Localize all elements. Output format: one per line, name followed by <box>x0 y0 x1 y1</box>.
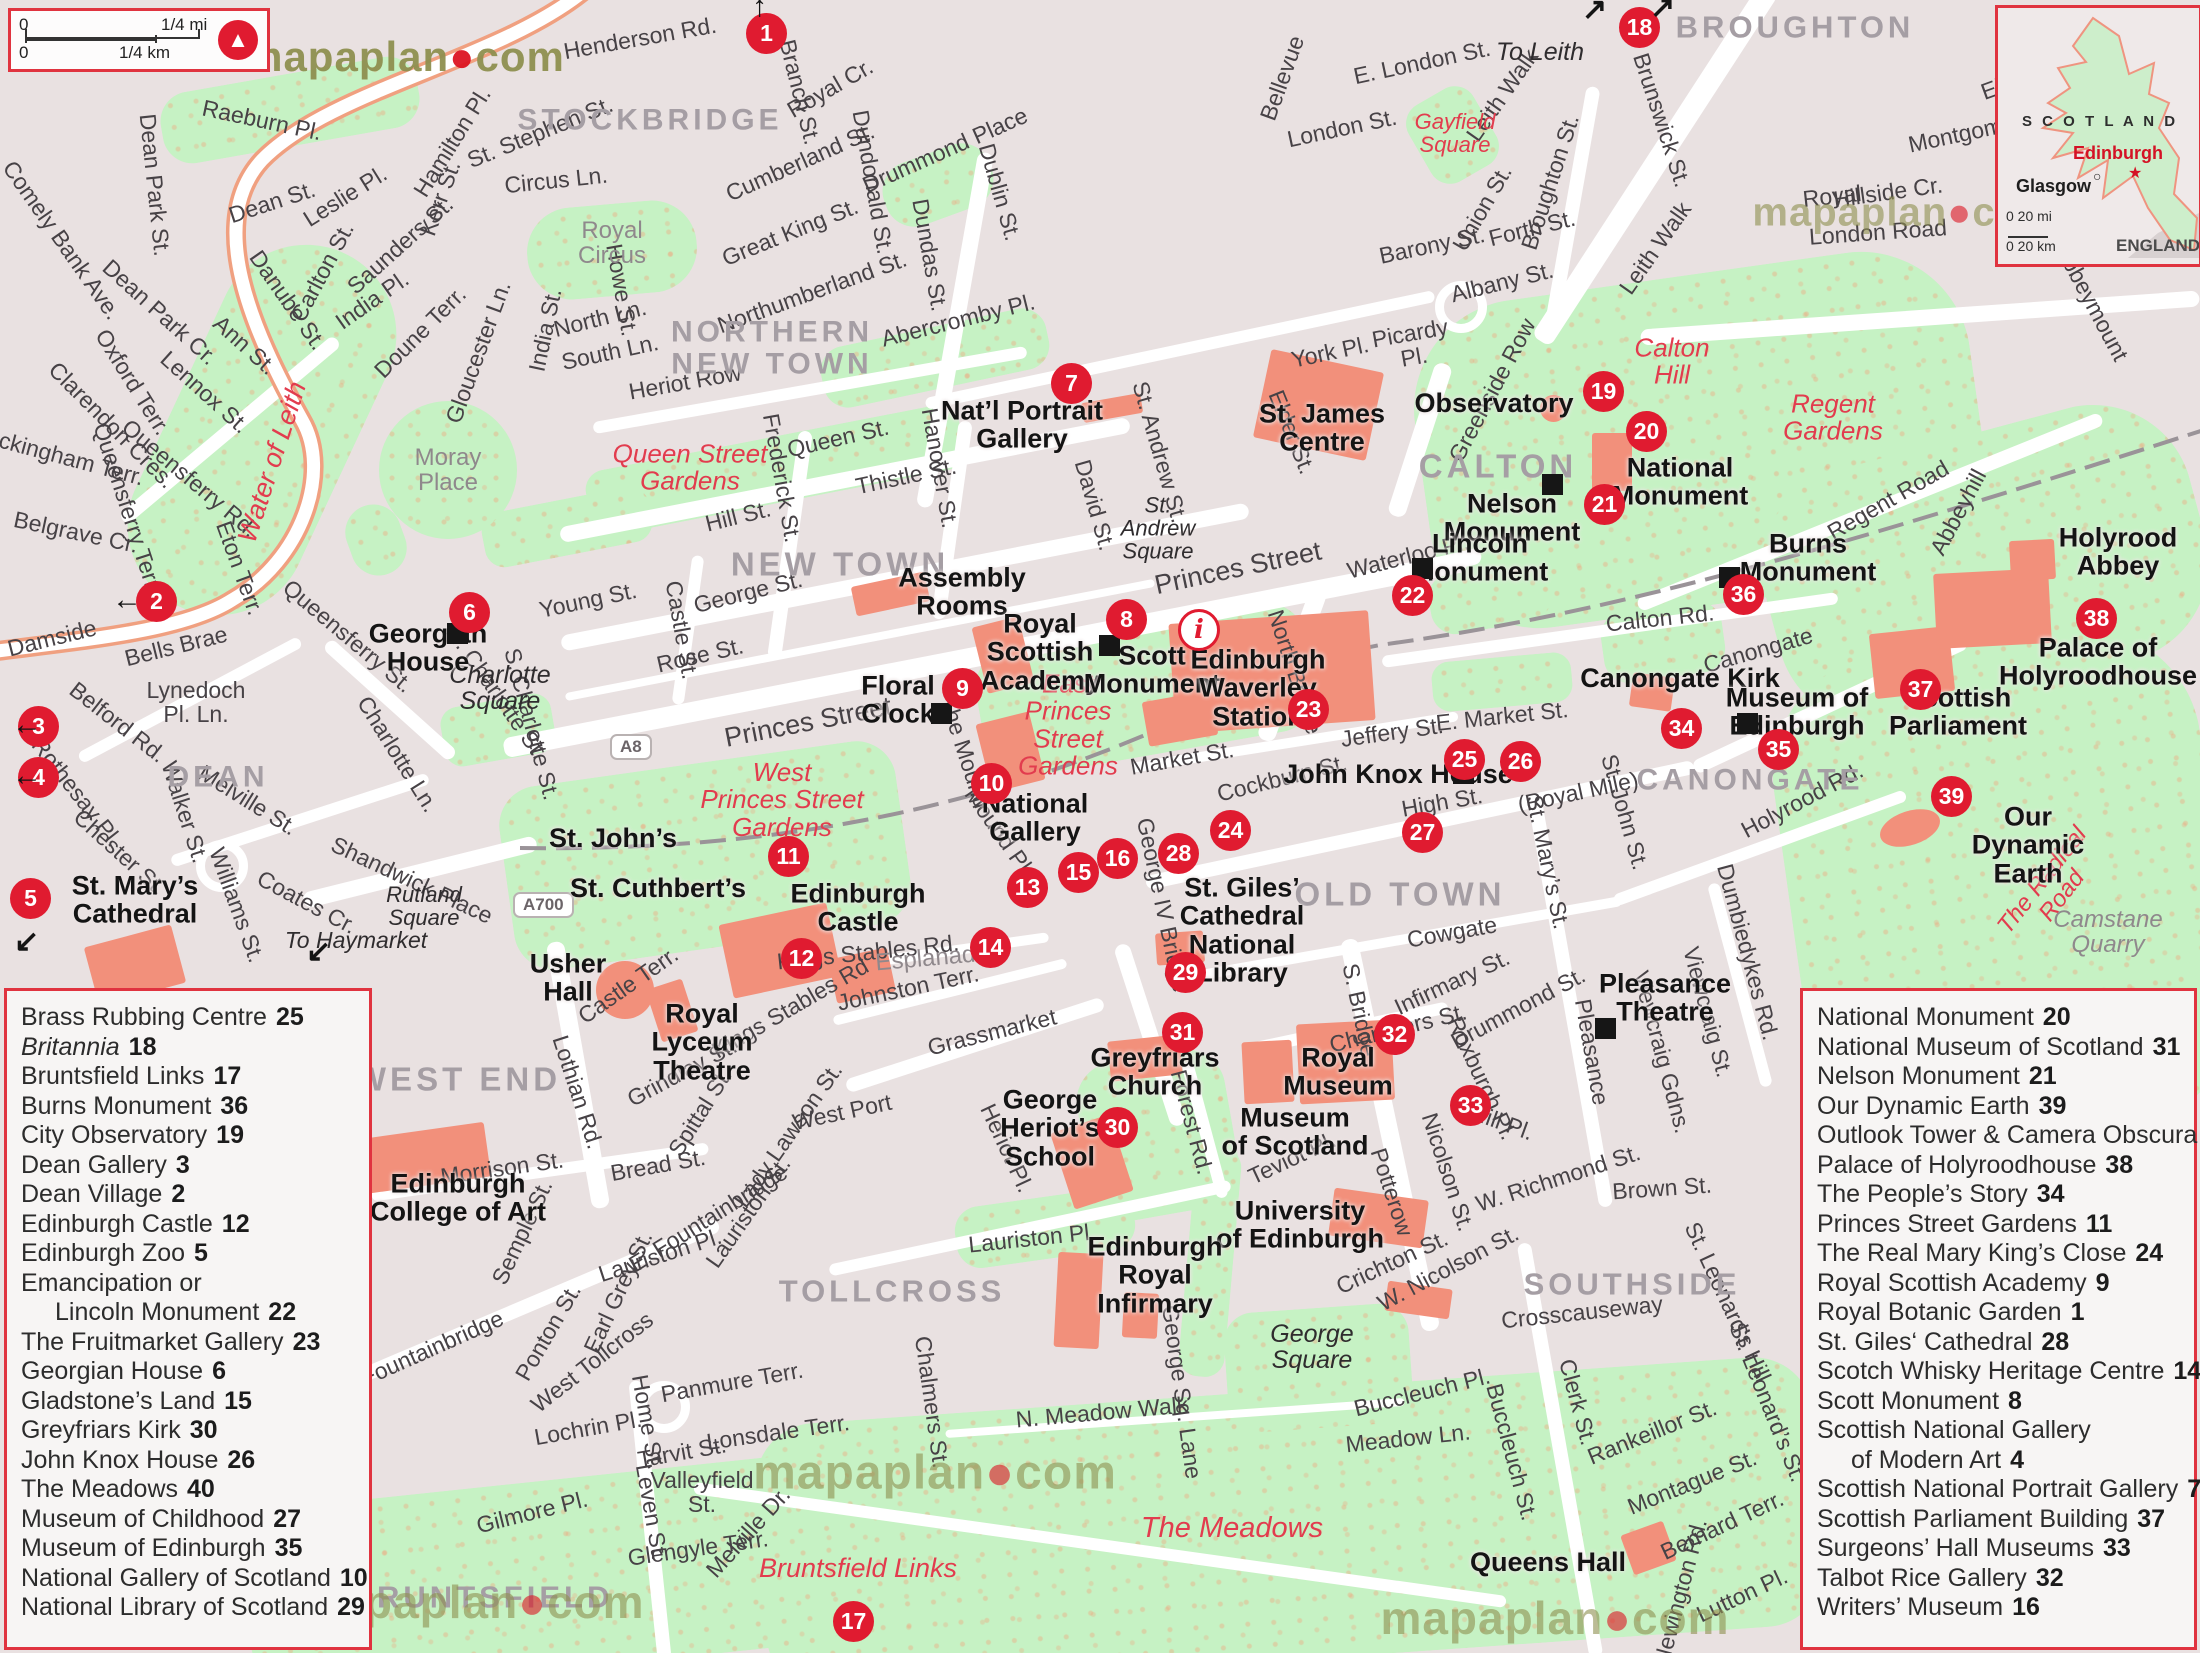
scale-tick <box>25 35 27 43</box>
north-arrow-glyph: ▲ <box>227 27 249 53</box>
inset-england-label: ENGLAND <box>2116 236 2200 256</box>
legend-item-continuation: Lincoln Monument22 <box>21 1298 369 1328</box>
inset-region-label: S C O T L A N D <box>2022 113 2178 130</box>
monument-square-icon <box>1542 474 1563 495</box>
legend-item-number: 24 <box>2135 1239 2163 1267</box>
road-number-badge: A8 <box>610 734 652 760</box>
legend-item-number: 19 <box>216 1121 244 1149</box>
legend-item: Royal Scottish Academy9 <box>1817 1269 2194 1299</box>
legend-item-name: Scottish National Portrait Gallery <box>1817 1475 2178 1503</box>
legend-item: National Museum of Scotland31 <box>1817 1033 2194 1063</box>
legend-item-name: Surgeons’ Hall Museums <box>1817 1534 2094 1562</box>
poi-marker: 6 <box>449 592 490 633</box>
place-label: Greyfriars Church <box>1090 1044 1219 1101</box>
scale-km-label: 1/4 km <box>119 43 170 63</box>
legend-item-name: Britannia <box>21 1033 120 1061</box>
legend-item-name: Scottish Parliament Building <box>1817 1505 2128 1533</box>
legend-item-name: Scott Monument <box>1817 1387 1999 1415</box>
legend-item: The Meadows40 <box>21 1475 369 1505</box>
legend-item-number: 6 <box>212 1357 226 1385</box>
legend-item-name: Museum of Edinburgh <box>21 1534 266 1562</box>
brand-dot-icon: ● <box>518 1576 547 1628</box>
street-label: Fountainbridge <box>357 1306 507 1390</box>
legend-item: Dean Gallery3 <box>21 1151 369 1181</box>
legend-item: Palace of Holyroodhouse38 <box>1817 1151 2194 1181</box>
poi-marker: 25 <box>1444 739 1485 780</box>
brand-watermark: mapaplan●com <box>753 1446 1117 1501</box>
legend-item: Brass Rubbing Centre25 <box>21 1003 369 1033</box>
poi-marker: 34 <box>1661 708 1702 749</box>
legend-item-name: Royal Botanic Garden <box>1817 1298 2062 1326</box>
legend-item-number: 37 <box>2137 1505 2165 1533</box>
street-label: Brown St. <box>1611 1172 1712 1203</box>
poi-marker: 17 <box>833 1601 874 1642</box>
poi-marker: 26 <box>1500 741 1541 782</box>
poi-marker: 36 <box>1723 574 1764 615</box>
poi-marker: 19 <box>1583 371 1624 412</box>
legend-item-name: Dean Village <box>21 1180 162 1208</box>
legend-item: Edinburgh Zoo5 <box>21 1239 369 1269</box>
legend-item-name: The Fruitmarket Gallery <box>21 1328 284 1356</box>
district-label: NORTHERN NEW TOWN <box>671 317 873 380</box>
district-label: CANONGATE <box>1636 764 1863 796</box>
district-label: BROUGHTON <box>1676 12 1915 45</box>
scale-km-rule <box>25 39 157 41</box>
brand-watermark: mapaplan●com <box>1380 1591 1729 1645</box>
scale-tick <box>198 29 200 37</box>
poi-marker: 30 <box>1097 1107 1138 1148</box>
legend-item-name: National Monument <box>1817 1003 2034 1031</box>
legend-item: Nelson Monument21 <box>1817 1062 2194 1092</box>
scotland-shape <box>1998 8 2199 264</box>
legend-item-name: Edinburgh Zoo <box>21 1239 185 1267</box>
street-label: Great King St. <box>719 194 862 271</box>
legend-item: Scotch Whisky Heritage Centre14 <box>1817 1357 2194 1387</box>
legend-item-number: 5 <box>194 1239 208 1267</box>
park-name-label: Gayfield Square <box>1415 110 1496 156</box>
district-label: SOUTHSIDE <box>1524 1269 1741 1302</box>
place-label: Museum of Scotland <box>1222 1104 1369 1161</box>
legend-item-number: 15 <box>224 1387 252 1415</box>
inset-scale-mi: 0 20 mi <box>2006 208 2052 224</box>
edinburgh-tourist-map: Henderson Rd.Branch St.Raeburn Pl.Dean P… <box>0 0 2200 1653</box>
legend-item-number: 27 <box>273 1505 301 1533</box>
legend-item-name: St. Giles‘ Cathedral <box>1817 1328 2032 1356</box>
street-label: Bellevue <box>1256 32 1309 123</box>
legend-left-panel: Brass Rubbing Centre25Britannia18Bruntsf… <box>4 988 372 1650</box>
direction-arrow-icon: ↗ <box>1582 0 1607 27</box>
legend-item: National Monument20 <box>1817 1003 2194 1033</box>
legend-item-number: 12 <box>222 1210 250 1238</box>
legend-item-number: 35 <box>275 1534 303 1562</box>
poi-marker: 14 <box>970 927 1011 968</box>
legend-item-name: Scotch Whisky Heritage Centre <box>1817 1357 2164 1385</box>
street-label: Lochrin Pl. <box>532 1407 643 1450</box>
poi-marker: 22 <box>1392 575 1433 616</box>
legend-item-name: Outlook Tower & Camera Obscura <box>1817 1121 2197 1149</box>
poi-marker: 20 <box>1626 411 1667 452</box>
poi-marker: 31 <box>1162 1012 1203 1053</box>
legend-item-number: 1 <box>2071 1298 2085 1326</box>
poi-marker: 9 <box>942 668 983 709</box>
poi-marker: 2 <box>136 581 177 622</box>
legend-item-number: 9 <box>2096 1269 2110 1297</box>
place-label: Our Dynamic Earth <box>1972 802 2085 887</box>
legend-item-number: 32 <box>2036 1564 2064 1592</box>
poi-marker: 27 <box>1402 812 1443 853</box>
legend-item: Museum of Childhood27 <box>21 1505 369 1535</box>
legend-item-number: 4 <box>2010 1446 2024 1474</box>
legend-item: The Fruitmarket Gallery23 <box>21 1328 369 1358</box>
poi-marker: 37 <box>1900 669 1941 710</box>
poi-marker: 39 <box>1931 776 1972 817</box>
legend-item-name: Nelson Monument <box>1817 1062 2020 1090</box>
park-name-label: Regent Gardens <box>1783 391 1883 446</box>
poi-marker: 38 <box>2076 598 2117 639</box>
area-name-label: Rutland Square <box>386 883 462 929</box>
poi-marker: 7 <box>1051 363 1092 404</box>
legend-item: Gladstone’s Land15 <box>21 1387 369 1417</box>
legend-item-number: 18 <box>129 1033 157 1061</box>
park-name-label: Bruntsfield Links <box>759 1554 957 1582</box>
park-name-label: The Meadows <box>1141 1513 1323 1543</box>
legend-item-number: 30 <box>190 1416 218 1444</box>
legend-item-number: 11 <box>2086 1210 2112 1238</box>
legend-item: Writers’ Museum16 <box>1817 1593 2194 1623</box>
legend-item-name: John Knox House <box>21 1446 218 1474</box>
street-label: Circus Ln. <box>503 163 609 198</box>
legend-item-number: 40 <box>187 1475 215 1503</box>
inset-scale-km: 0 20 km <box>2006 238 2056 254</box>
poi-marker: 28 <box>1158 833 1199 874</box>
scale-tick <box>155 35 157 43</box>
place-label: Palace of Holyroodhouse <box>1999 634 2197 691</box>
inset-scale-rule <box>2008 230 2048 238</box>
street-label: Damside <box>5 615 99 660</box>
place-label: Royal Lyceum Theatre <box>651 999 752 1084</box>
poi-marker: 23 <box>1288 689 1329 730</box>
legend-item-number: 39 <box>2039 1092 2067 1120</box>
legend-item-number: 25 <box>276 1003 304 1031</box>
legend-item-name: The Real Mary King’s Close <box>1817 1239 2126 1267</box>
place-label: University of Edinburgh <box>1216 1197 1384 1254</box>
legend-item-name: Georgian House <box>21 1357 203 1385</box>
monument-square-icon <box>1099 635 1120 656</box>
poi-marker: 32 <box>1374 1014 1415 1055</box>
legend-item-number: 34 <box>2037 1180 2065 1208</box>
road-number-badge: A700 <box>513 892 574 918</box>
legend-item-name: City Observatory <box>21 1121 207 1149</box>
scale-km-zero: 0 <box>19 43 28 63</box>
scotland-landmass <box>2043 18 2197 250</box>
legend-item-name: Greyfriars Kirk <box>21 1416 181 1444</box>
direction-arrow-icon: ↙ <box>14 924 39 959</box>
legend-item-number: 16 <box>2012 1593 2040 1621</box>
legend-item: Bruntsfield Links17 <box>21 1062 369 1092</box>
direction-arrow-icon: ↑ <box>752 0 767 24</box>
legend-item: Surgeons’ Hall Museums33 <box>1817 1534 2194 1564</box>
legend-item-number: 17 <box>213 1062 241 1090</box>
brand-dot-icon: ● <box>449 33 475 80</box>
monument-square-icon <box>931 703 952 724</box>
street-label: St. Mary’s St. <box>1522 793 1574 931</box>
place-label: St. Mary’s Cathedral <box>72 872 199 929</box>
street-label: Comely Bank Ave. <box>0 156 126 323</box>
minor-area-label: Moray Place <box>415 445 482 495</box>
brand-text: mapaplan <box>1380 1592 1603 1644</box>
park-name-label: Queen Street Gardens <box>613 441 768 496</box>
legend-item-number: 10 <box>340 1564 368 1592</box>
brand-text: mapaplan <box>245 33 449 80</box>
legend-item: St. Giles‘ Cathedral28 <box>1817 1328 2194 1358</box>
place-label: Edinburgh College of Art <box>370 1170 546 1227</box>
direction-arrow-icon: ↗ <box>1650 0 1675 25</box>
district-label: WEST END <box>355 1063 561 1098</box>
legend-item: Georgian House6 <box>21 1357 369 1387</box>
brand-watermark: mapaplan●com <box>245 33 565 81</box>
legend-item-name-line2: of Modern Art <box>1851 1446 2001 1474</box>
legend-item-number: 23 <box>293 1328 321 1356</box>
legend-item-number: 2 <box>171 1180 185 1208</box>
poi-marker: 5 <box>10 878 51 919</box>
legend-item: Scottish National Gallery <box>1817 1416 2194 1446</box>
legend-item-name: Gladstone’s Land <box>21 1387 215 1415</box>
street-label: E. London St. <box>1351 36 1492 89</box>
poi-marker: 11 <box>768 836 809 877</box>
legend-item-number: 21 <box>2029 1062 2057 1090</box>
legend-item-number: 8 <box>2008 1387 2022 1415</box>
legend-item-name: National Gallery of Scotland <box>21 1564 331 1592</box>
place-label: Floral Clock <box>861 672 935 729</box>
place-label: Edinburgh Royal Infirmary <box>1088 1232 1223 1317</box>
legend-item: Our Dynamic Earth39 <box>1817 1092 2194 1122</box>
legend-item: Princes Street Gardens11 <box>1817 1210 2194 1240</box>
street-label: Bells Brae <box>122 622 230 671</box>
place-label: Royal Museum <box>1283 1044 1393 1101</box>
legend-item-name: Our Dynamic Earth <box>1817 1092 2030 1120</box>
street-label: Henderson Rd. <box>562 13 719 64</box>
scale-bar: 0 1/4 mi 0 1/4 km ▲ <box>8 8 270 72</box>
brand-tld: com <box>547 1576 645 1628</box>
poi-marker: 15 <box>1058 852 1099 893</box>
area-name-label: To Leith <box>1496 39 1584 65</box>
street-label: London St. <box>1285 105 1399 152</box>
legend-item-number: 31 <box>2153 1033 2181 1061</box>
direction-arrow-icon: ← <box>12 759 42 793</box>
street-label: Young St. <box>537 578 639 622</box>
brand-dot-icon: ● <box>1603 1592 1632 1644</box>
place-label: Burns Monument <box>1740 530 1876 587</box>
legend-item: Scott Monument8 <box>1817 1387 2194 1417</box>
district-label: STOCKBRIDGE <box>517 104 782 136</box>
monument-square-icon <box>1737 713 1758 734</box>
legend-item-name: Brass Rubbing Centre <box>21 1003 267 1031</box>
legend-item-name: Scottish National Gallery <box>1817 1416 2091 1444</box>
poi-marker: 8 <box>1106 599 1147 640</box>
direction-arrow-icon: ↙ <box>306 934 331 969</box>
legend-item-number: 14 <box>2173 1357 2200 1385</box>
scale-mi-rule <box>25 25 200 39</box>
legend-item-name: Royal Scottish Academy <box>1817 1269 2087 1297</box>
poi-marker: 10 <box>971 763 1012 804</box>
legend-item-number: 7 <box>2187 1475 2200 1503</box>
legend-item-name: National Museum of Scotland <box>1817 1033 2144 1061</box>
place-label: Nat’l Portrait Gallery <box>941 397 1103 454</box>
legend-item-name: Palace of Holyroodhouse <box>1817 1151 2096 1179</box>
poi-marker: 35 <box>1758 729 1799 770</box>
legend-item: Greyfriars Kirk30 <box>21 1416 369 1446</box>
minor-area-label: Royal Circus <box>578 218 646 268</box>
brand-dot-icon: ● <box>1947 191 1972 235</box>
poi-marker: 29 <box>1165 952 1206 993</box>
legend-item: Dean Village2 <box>21 1180 369 1210</box>
legend-item-name: Bruntsfield Links <box>21 1062 204 1090</box>
legend-item-number: 22 <box>268 1298 296 1326</box>
legend-item-name: Edinburgh Castle <box>21 1210 213 1238</box>
legend-item: Emancipation or <box>21 1269 369 1299</box>
legend-item: Burns Monument36 <box>21 1092 369 1122</box>
legend-item-name: Talbot Rice Gallery <box>1817 1564 2027 1592</box>
park-name-label: West Princes Street Gardens <box>700 759 863 841</box>
place-label: St. John’s <box>549 824 677 852</box>
legend-item-name: Emancipation or <box>21 1269 202 1297</box>
legend-item: The People’s Story34 <box>1817 1180 2194 1210</box>
place-label: Queens Hall <box>1470 1548 1626 1576</box>
legend-item-number: 38 <box>2105 1151 2133 1179</box>
inset-scotland-map: S C O T L A N D Edinburgh ★ Glasgow ○ 0 … <box>1995 5 2200 267</box>
place-label: St. James Centre <box>1259 400 1385 457</box>
legend-item: Royal Botanic Garden1 <box>1817 1298 2194 1328</box>
inset-glasgow-marker: ○ <box>2093 168 2101 184</box>
legend-item-number: 33 <box>2103 1534 2131 1562</box>
direction-arrow-icon: ← <box>112 583 142 617</box>
legend-item: John Knox House26 <box>21 1446 369 1476</box>
place-label: St. Cuthbert’s <box>570 874 746 902</box>
brand-tld: com <box>1015 1447 1117 1500</box>
inset-edinburgh-marker: ★ <box>2128 163 2142 183</box>
street-label: Valleyfield St. <box>650 1468 753 1516</box>
legend-item: Scottish National Portrait Gallery7 <box>1817 1475 2194 1505</box>
legend-item-name-line2: Lincoln Monument <box>55 1298 259 1326</box>
district-label: OLD TOWN <box>1294 878 1505 913</box>
legend-item: Britannia18 <box>21 1033 369 1063</box>
area-name-label: St. Andrew Square <box>1121 493 1196 562</box>
tourist-info-icon: i <box>1178 609 1220 651</box>
street-label: Bread St. <box>609 1145 708 1185</box>
place-label: Royal Scottish Academy <box>980 609 1100 694</box>
place-label: Edinburgh Castle <box>791 880 926 937</box>
street-label: Cowgate <box>1405 912 1499 952</box>
brand-dot-icon: ● <box>985 1447 1015 1500</box>
legend-item-name: The People’s Story <box>1817 1180 2028 1208</box>
place-label: Pleasance Theatre <box>1599 970 1731 1027</box>
poi-marker: 33 <box>1450 1085 1491 1126</box>
brand-tld: com <box>476 33 565 80</box>
street-label: Lynedoch Pl. Ln. <box>147 678 246 726</box>
legend-item: Outlook Tower & Camera Obscura13 <box>1817 1121 2194 1151</box>
legend-item-name: Museum of Childhood <box>21 1505 264 1533</box>
monument-square-icon <box>1595 1018 1616 1039</box>
legend-item: Scottish Parliament Building37 <box>1817 1505 2194 1535</box>
poi-marker: 12 <box>781 938 822 979</box>
park-name-label: Calton Hill <box>1634 335 1709 390</box>
inset-edinburgh-label: Edinburgh <box>2073 143 2163 164</box>
poi-marker: 13 <box>1007 867 1048 908</box>
minor-area-label: Camstane Quarry <box>2053 907 2162 957</box>
legend-item-name: Writers’ Museum <box>1817 1593 2003 1621</box>
legend-right-panel: National Monument20National Museum of Sc… <box>1800 988 2197 1650</box>
direction-arrow-icon: ← <box>12 708 42 742</box>
legend-item: National Library of Scotland29 <box>21 1593 369 1623</box>
legend-item-number: 26 <box>227 1446 255 1474</box>
place-label: Usher Hall <box>530 950 607 1007</box>
legend-item: The Real Mary King’s Close24 <box>1817 1239 2194 1269</box>
legend-item-name: Burns Monument <box>21 1092 211 1120</box>
poi-marker: 21 <box>1584 484 1625 525</box>
place-label: National Monument <box>1612 454 1748 511</box>
poi-marker: 24 <box>1210 810 1251 851</box>
legend-item-number: 20 <box>2043 1003 2071 1031</box>
legend-item-name: Dean Gallery <box>21 1151 167 1179</box>
brand-tld: com <box>1632 1592 1730 1644</box>
place-label: Holyrood Abbey <box>2059 524 2178 581</box>
district-label: DEAN <box>167 761 268 793</box>
legend-item: Talbot Rice Gallery32 <box>1817 1564 2194 1594</box>
legend-item-name: The Meadows <box>21 1475 178 1503</box>
north-arrow-icon: ▲ <box>218 20 258 60</box>
place-label: Observatory <box>1414 389 1573 417</box>
legend-item: National Gallery of Scotland10 <box>21 1564 369 1594</box>
legend-item-continuation: of Modern Art4 <box>1817 1446 2194 1476</box>
legend-item-name: National Library of Scotland <box>21 1593 328 1621</box>
legend-item: Edinburgh Castle12 <box>21 1210 369 1240</box>
legend-item-number: 29 <box>337 1593 365 1621</box>
district-label: TOLLCROSS <box>779 1276 1006 1309</box>
street-label: Panmure Terr. <box>659 1358 805 1407</box>
poi-marker: 16 <box>1097 838 1138 879</box>
place-label: George Heriot’s School <box>1000 1085 1100 1170</box>
brand-text: mapaplan <box>753 1447 985 1500</box>
legend-item: City Observatory19 <box>21 1121 369 1151</box>
legend-item-name: Princes Street Gardens <box>1817 1210 2077 1238</box>
legend-item-number: 3 <box>176 1151 190 1179</box>
brand-text: mapaplan <box>1752 191 1947 235</box>
legend-item-number: 36 <box>220 1092 248 1120</box>
street-label: Grassmarket <box>925 1004 1059 1059</box>
inset-glasgow-label: Glasgow <box>2016 176 2091 197</box>
building <box>2008 539 2055 581</box>
legend-item: Museum of Edinburgh35 <box>21 1534 369 1564</box>
area-name-label: George Square <box>1270 1321 1353 1374</box>
legend-item-number: 28 <box>2041 1328 2069 1356</box>
